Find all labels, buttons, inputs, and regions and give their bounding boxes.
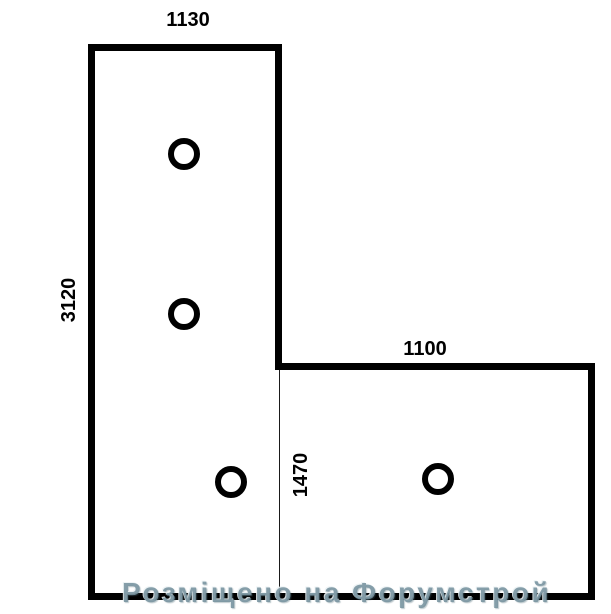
hole-marker (171, 141, 197, 167)
watermark-text: Розміщено на Форумстрой (122, 577, 551, 609)
dimension-label-left-height: 3120 (59, 278, 79, 323)
plan-sketch: 1130 3120 1100 1470 Розміщено на Форумст… (0, 0, 611, 614)
floor-plan-drawing (0, 0, 611, 614)
hole-marker (171, 301, 197, 327)
hole-marker (218, 469, 244, 495)
hole-marker (425, 466, 451, 492)
dimension-label-right-section-width: 1100 (403, 339, 446, 359)
dimension-label-top-width: 1130 (166, 10, 209, 30)
plan-outline (92, 48, 592, 597)
dimension-label-right-section-height: 1470 (291, 453, 311, 498)
